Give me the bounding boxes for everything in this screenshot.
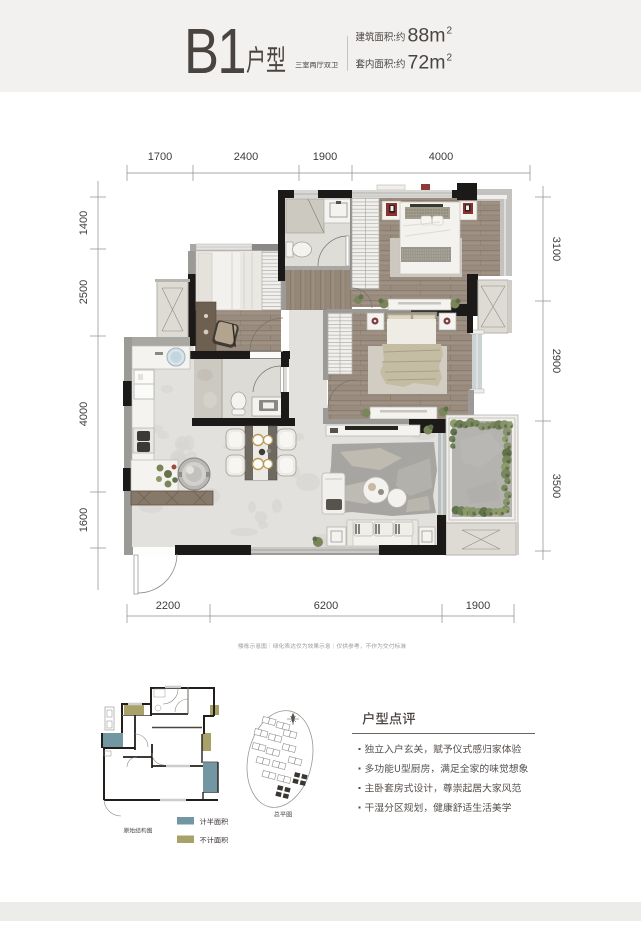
svg-text:2500: 2500 [78,280,90,304]
svg-text:1700: 1700 [148,151,172,163]
svg-text:1600: 1600 [78,508,90,532]
svg-text:4000: 4000 [78,402,90,426]
svg-text:4000: 4000 [429,151,453,163]
svg-text:2200: 2200 [156,600,180,612]
svg-text:2400: 2400 [234,151,258,163]
svg-text:1900: 1900 [313,151,337,163]
svg-text:3500: 3500 [550,474,562,498]
svg-text:2900: 2900 [550,349,562,373]
svg-text:6200: 6200 [314,600,338,612]
svg-text:3100: 3100 [550,237,562,261]
svg-text:1400: 1400 [78,211,90,235]
svg-text:1900: 1900 [466,600,490,612]
svg-text:2: 2 [447,53,453,64]
svg-text:88m: 88m [408,25,446,47]
svg-text:72m: 72m [408,52,446,74]
svg-text:B1: B1 [184,16,245,87]
svg-text:2: 2 [447,26,453,37]
